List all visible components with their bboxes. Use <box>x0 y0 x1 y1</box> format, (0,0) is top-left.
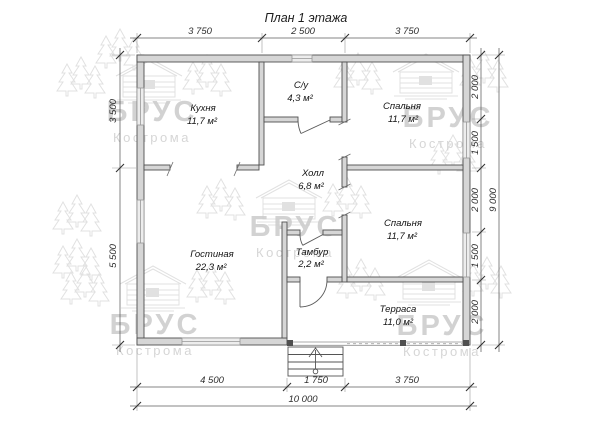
dim-top-2: 2 500 <box>290 26 315 37</box>
dim-bottom-3: 3 750 <box>395 375 419 386</box>
room-vestibule-name: Тамбур <box>296 247 329 258</box>
dim-right-4: 1 500 <box>470 243 481 267</box>
entrance-door <box>300 280 327 307</box>
room-living-area: 22,3 м² <box>195 262 228 273</box>
room-kitchen-area: 11,7 м² <box>187 116 218 127</box>
dim-left-1: 3 500 <box>108 98 119 122</box>
room-bedroom1-area: 11,7 м² <box>388 114 419 125</box>
room-hall-name: Холл <box>301 168 325 179</box>
dim-right-2: 1 500 <box>470 130 481 154</box>
terrace-post <box>287 340 293 346</box>
plan-title: План 1 этажа <box>265 11 348 25</box>
room-living-name: Гостиная <box>190 249 233 260</box>
dim-bottom-total: 10 000 <box>288 394 318 405</box>
room-hall-area: 6,8 м² <box>298 181 324 192</box>
floor-plan-drawing: План 1 этажа 3 750 2 500 3 750 3 500 5 5… <box>0 0 600 424</box>
dim-left-2: 5 500 <box>108 243 119 267</box>
room-bedroom2-area: 11,7 м² <box>387 231 418 242</box>
dim-right-1: 2 000 <box>470 74 481 99</box>
terrace-post <box>463 340 469 346</box>
room-vestibule-area: 2,2 м² <box>297 259 324 270</box>
room-bathroom-area: 4,3 м² <box>287 93 313 104</box>
vestibule-door <box>300 235 323 246</box>
room-bedroom2-name: Спальня <box>384 218 422 229</box>
terrace-post <box>400 340 406 346</box>
bathroom-door <box>298 120 330 134</box>
room-terrace-area: 11,0 м² <box>383 317 414 328</box>
terrace-edge <box>287 340 470 346</box>
dim-bottom-2: 1 750 <box>304 375 328 386</box>
room-labels: Кухня 11,7 м² С/у 4,3 м² Спальня 11,7 м²… <box>187 80 422 328</box>
room-terrace-name: Терраса <box>380 304 417 315</box>
room-bathroom-name: С/у <box>294 80 310 91</box>
entrance-stairs <box>288 347 343 376</box>
dim-right-5: 2 000 <box>470 299 481 324</box>
dim-right-total: 9 000 <box>488 187 499 211</box>
dim-right-3: 2 000 <box>470 187 481 212</box>
room-bedroom1-name: Спальня <box>383 101 421 112</box>
room-kitchen-name: Кухня <box>190 103 215 114</box>
dim-top-1: 3 750 <box>188 26 212 37</box>
floor-plan-page: БРУС Кострома БРУС Кострома БРУС Костром… <box>0 0 600 424</box>
dim-top-3: 3 750 <box>395 26 419 37</box>
dim-bottom-1: 4 500 <box>200 375 224 386</box>
